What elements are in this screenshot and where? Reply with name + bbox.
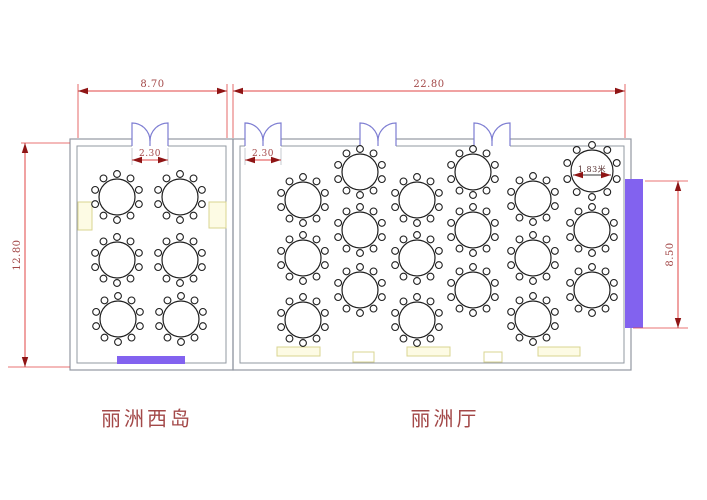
chair xyxy=(92,264,99,271)
chair xyxy=(286,273,293,280)
chair xyxy=(530,278,537,285)
chair xyxy=(530,219,537,226)
chair xyxy=(93,308,100,315)
chair xyxy=(136,323,143,330)
chair xyxy=(543,177,550,184)
chair xyxy=(589,142,596,149)
chair xyxy=(575,208,582,215)
chair xyxy=(543,334,550,341)
wall-opening xyxy=(353,352,374,362)
chair xyxy=(313,298,320,305)
banquet-table xyxy=(99,179,135,215)
chair xyxy=(370,150,377,157)
chair xyxy=(470,146,477,153)
chair xyxy=(530,293,537,300)
chair xyxy=(414,294,421,301)
chair xyxy=(508,247,515,254)
chair xyxy=(378,294,385,301)
service-counter xyxy=(407,347,450,356)
chair xyxy=(177,171,184,178)
chair xyxy=(163,175,170,182)
chair xyxy=(163,238,170,245)
chair xyxy=(100,212,107,219)
chair xyxy=(198,201,205,208)
chair xyxy=(300,174,307,181)
banquet-table xyxy=(162,179,198,215)
chair xyxy=(414,232,421,239)
chair xyxy=(114,217,121,224)
chair xyxy=(155,264,162,271)
chair xyxy=(278,324,285,331)
chair xyxy=(470,192,477,199)
chair xyxy=(448,294,455,301)
chair xyxy=(321,309,328,316)
chair xyxy=(470,264,477,271)
chair xyxy=(530,173,537,180)
chair xyxy=(470,310,477,317)
chair xyxy=(551,323,558,330)
chair xyxy=(127,275,134,282)
chair xyxy=(313,335,320,342)
chair xyxy=(435,309,442,316)
chair xyxy=(483,305,490,312)
chair xyxy=(400,298,407,305)
banquet-table xyxy=(285,182,321,218)
chair xyxy=(370,305,377,312)
chair xyxy=(190,275,197,282)
chair xyxy=(589,204,596,211)
chair xyxy=(136,308,143,315)
chair xyxy=(427,298,434,305)
chair xyxy=(551,308,558,315)
dimension-arrowhead xyxy=(22,357,28,367)
chair xyxy=(543,236,550,243)
chair xyxy=(156,308,163,315)
chair xyxy=(335,294,342,301)
service-counter xyxy=(277,347,320,356)
chair xyxy=(190,175,197,182)
chair xyxy=(357,192,364,199)
chair xyxy=(448,279,455,286)
chair xyxy=(278,262,285,269)
dimension-arrowhead xyxy=(615,88,625,94)
banquet-table xyxy=(100,301,136,337)
chair xyxy=(551,262,558,269)
banquet-table xyxy=(574,272,610,308)
banquet-table xyxy=(574,212,610,248)
chair xyxy=(278,204,285,211)
chair xyxy=(516,273,523,280)
chair xyxy=(313,236,320,243)
chair xyxy=(589,310,596,317)
chair xyxy=(456,305,463,312)
chair xyxy=(343,268,350,275)
chair xyxy=(483,268,490,275)
chair xyxy=(567,294,574,301)
chair xyxy=(92,186,99,193)
chair xyxy=(378,219,385,226)
chair xyxy=(335,279,342,286)
chair xyxy=(435,262,442,269)
chair xyxy=(135,201,142,208)
chair xyxy=(286,215,293,222)
chair xyxy=(100,175,107,182)
banquet-table xyxy=(455,154,491,190)
chair xyxy=(190,212,197,219)
chair xyxy=(448,219,455,226)
chair xyxy=(178,293,185,300)
banquet-table xyxy=(455,272,491,308)
chair xyxy=(483,208,490,215)
service-counter xyxy=(209,202,226,228)
chair xyxy=(392,189,399,196)
chair xyxy=(610,234,617,241)
chair xyxy=(335,219,342,226)
chair xyxy=(392,204,399,211)
chair xyxy=(177,217,184,224)
chair xyxy=(483,150,490,157)
chair xyxy=(321,189,328,196)
chair xyxy=(392,247,399,254)
banquet-table xyxy=(99,242,135,278)
chair xyxy=(335,176,342,183)
chair xyxy=(343,305,350,312)
chair xyxy=(448,176,455,183)
chair xyxy=(610,294,617,301)
chair xyxy=(321,247,328,254)
chair xyxy=(135,186,142,193)
wall-opening xyxy=(484,352,502,362)
chair xyxy=(456,268,463,275)
chair xyxy=(101,297,108,304)
banquet-table xyxy=(515,240,551,276)
chair xyxy=(378,161,385,168)
chair xyxy=(357,204,364,211)
chair xyxy=(483,187,490,194)
dimension-value: 12.80 xyxy=(12,239,23,270)
chair xyxy=(155,186,162,193)
chair xyxy=(100,238,107,245)
chair xyxy=(508,203,515,210)
chair xyxy=(177,280,184,287)
chair xyxy=(602,245,609,252)
chair xyxy=(567,234,574,241)
chair xyxy=(516,334,523,341)
chair xyxy=(370,208,377,215)
chair xyxy=(163,275,170,282)
chair xyxy=(335,234,342,241)
chair xyxy=(516,236,523,243)
chair xyxy=(357,310,364,317)
chair xyxy=(456,245,463,252)
chair xyxy=(343,245,350,252)
chair xyxy=(156,323,163,330)
chair xyxy=(128,334,135,341)
chair xyxy=(491,279,498,286)
chair xyxy=(400,215,407,222)
chair xyxy=(564,160,571,167)
chair xyxy=(470,250,477,257)
dimension-arrowhead xyxy=(675,181,681,191)
banquet-table xyxy=(285,240,321,276)
chair xyxy=(286,178,293,185)
chair xyxy=(400,273,407,280)
chair xyxy=(414,278,421,285)
chair xyxy=(127,238,134,245)
chair xyxy=(491,234,498,241)
chair xyxy=(321,204,328,211)
service-counter xyxy=(538,347,580,356)
door-width-dimension: 2.30 xyxy=(252,149,274,159)
chair xyxy=(491,161,498,168)
chair xyxy=(357,146,364,153)
chair xyxy=(427,335,434,342)
chair xyxy=(198,249,205,256)
chair xyxy=(164,297,171,304)
chair xyxy=(427,215,434,222)
chair xyxy=(114,234,121,241)
chair xyxy=(313,273,320,280)
dimension-arrowhead xyxy=(675,318,681,328)
chair xyxy=(470,204,477,211)
chair xyxy=(400,335,407,342)
chair xyxy=(321,324,328,331)
chair xyxy=(613,160,620,167)
chair xyxy=(435,204,442,211)
dimension-value: 8.70 xyxy=(140,79,164,90)
dimension-value: 8.50 xyxy=(665,242,676,266)
chair xyxy=(530,339,537,346)
chair xyxy=(100,275,107,282)
chair xyxy=(483,245,490,252)
chair xyxy=(456,208,463,215)
chair xyxy=(114,171,121,178)
chair xyxy=(92,249,99,256)
banquet-table xyxy=(163,301,199,337)
chair xyxy=(370,245,377,252)
chair xyxy=(286,236,293,243)
banquet-table xyxy=(342,154,378,190)
banquet-table xyxy=(342,212,378,248)
chair xyxy=(602,268,609,275)
chair xyxy=(115,339,122,346)
stage-platform xyxy=(117,356,185,364)
chair xyxy=(414,174,421,181)
service-counter xyxy=(78,202,92,230)
banquet-floor-plan: 2.302.308.7022.8012.808.501.83米 丽洲西岛 丽洲厅 xyxy=(0,0,707,500)
banquet-table xyxy=(285,302,321,338)
chair xyxy=(564,176,571,183)
chair xyxy=(491,219,498,226)
chair xyxy=(575,268,582,275)
chair xyxy=(551,203,558,210)
chair xyxy=(575,245,582,252)
chair xyxy=(516,177,523,184)
chair xyxy=(543,297,550,304)
chair xyxy=(191,334,198,341)
chair xyxy=(543,273,550,280)
chair xyxy=(435,189,442,196)
chair xyxy=(278,247,285,254)
chair xyxy=(357,264,364,271)
chair xyxy=(589,194,596,201)
chair xyxy=(602,208,609,215)
chair xyxy=(127,175,134,182)
chair xyxy=(567,279,574,286)
dimension-arrowhead xyxy=(233,88,243,94)
chair xyxy=(198,186,205,193)
chair xyxy=(313,178,320,185)
dimension-arrowhead xyxy=(217,88,227,94)
banquet-table xyxy=(399,302,435,338)
chair xyxy=(508,262,515,269)
chair xyxy=(286,298,293,305)
chair xyxy=(300,340,307,347)
stage-platform xyxy=(625,179,643,328)
chair xyxy=(589,264,596,271)
chair xyxy=(456,187,463,194)
chair xyxy=(575,305,582,312)
chair xyxy=(321,262,328,269)
chair xyxy=(135,249,142,256)
chair xyxy=(164,334,171,341)
chair xyxy=(589,250,596,257)
chair xyxy=(378,176,385,183)
chair xyxy=(101,334,108,341)
chair xyxy=(508,308,515,315)
chair xyxy=(613,176,620,183)
dimension-arrowhead xyxy=(78,88,88,94)
chair xyxy=(491,294,498,301)
chair xyxy=(448,234,455,241)
chair xyxy=(93,323,100,330)
chair xyxy=(286,335,293,342)
chair xyxy=(115,293,122,300)
chair xyxy=(392,309,399,316)
chair xyxy=(602,305,609,312)
chair xyxy=(335,161,342,168)
chair xyxy=(414,220,421,227)
chair xyxy=(128,297,135,304)
chair xyxy=(378,279,385,286)
chair xyxy=(435,324,442,331)
chair xyxy=(155,249,162,256)
chair xyxy=(278,309,285,316)
room-label-main-hall: 丽洲厅 xyxy=(411,403,480,432)
chair xyxy=(135,264,142,271)
chair xyxy=(343,187,350,194)
banquet-table xyxy=(399,182,435,218)
chair xyxy=(357,250,364,257)
chair xyxy=(448,161,455,168)
chair xyxy=(427,236,434,243)
chair xyxy=(508,323,515,330)
chair xyxy=(604,147,611,154)
chair xyxy=(343,150,350,157)
chair xyxy=(278,189,285,196)
banquet-table xyxy=(515,301,551,337)
chair xyxy=(551,247,558,254)
chair xyxy=(178,339,185,346)
chair xyxy=(313,215,320,222)
door-width-dimension: 2.30 xyxy=(139,149,161,159)
chair xyxy=(530,232,537,239)
chair xyxy=(127,212,134,219)
banquet-table xyxy=(455,212,491,248)
chair xyxy=(199,323,206,330)
dimension-arrowhead xyxy=(22,143,28,153)
chair xyxy=(400,236,407,243)
chair xyxy=(199,308,206,315)
chair xyxy=(163,212,170,219)
chair xyxy=(508,188,515,195)
chair xyxy=(155,201,162,208)
chair xyxy=(543,214,550,221)
chair xyxy=(392,262,399,269)
chair xyxy=(491,176,498,183)
chair xyxy=(198,264,205,271)
banquet-table xyxy=(162,242,198,278)
dimension-value: 22.80 xyxy=(413,79,444,90)
table-diameter-label: 1.83米 xyxy=(578,164,606,174)
chair xyxy=(435,247,442,254)
chair xyxy=(114,280,121,287)
chair xyxy=(427,273,434,280)
chair xyxy=(177,234,184,241)
chair xyxy=(456,150,463,157)
chair xyxy=(392,324,399,331)
room-label-west-island: 丽洲西岛 xyxy=(101,403,193,432)
chair xyxy=(191,297,198,304)
chair xyxy=(567,219,574,226)
chair xyxy=(551,188,558,195)
banquet-table xyxy=(342,272,378,308)
banquet-table xyxy=(515,181,551,217)
chair xyxy=(414,340,421,347)
chair xyxy=(427,178,434,185)
chair xyxy=(604,189,611,196)
chair xyxy=(370,268,377,275)
chair xyxy=(300,294,307,301)
chair xyxy=(92,201,99,208)
chair xyxy=(300,220,307,227)
chair xyxy=(610,279,617,286)
chair xyxy=(190,238,197,245)
chair xyxy=(400,178,407,185)
chair xyxy=(300,278,307,285)
chair xyxy=(378,234,385,241)
chair xyxy=(610,219,617,226)
chair xyxy=(516,214,523,221)
chair xyxy=(370,187,377,194)
chair xyxy=(516,297,523,304)
chair xyxy=(573,189,580,196)
chair xyxy=(300,232,307,239)
chair xyxy=(343,208,350,215)
banquet-table xyxy=(399,240,435,276)
chair xyxy=(573,147,580,154)
